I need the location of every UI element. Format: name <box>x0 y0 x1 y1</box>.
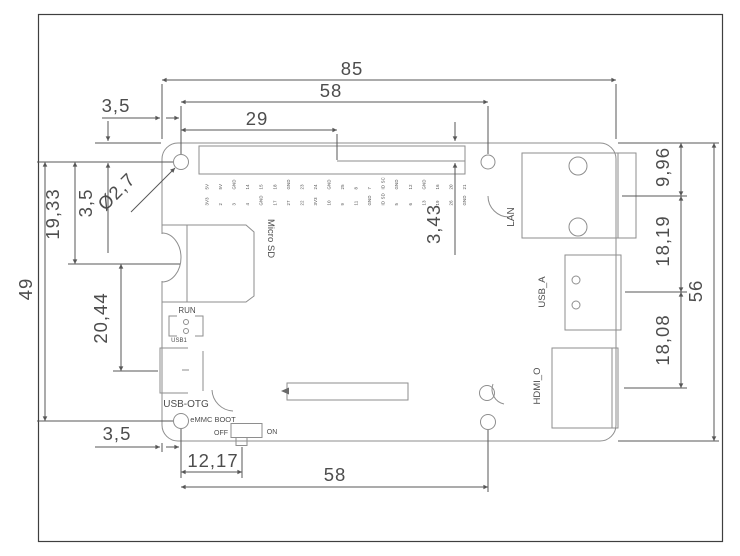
dim-hole-inset-y: 3,5 <box>75 189 96 218</box>
gpio-pin-label: GND <box>259 195 264 205</box>
lan-label: LAN <box>506 207 517 226</box>
dimension-lines <box>37 80 719 492</box>
usb-otg-label: USB-OTG <box>163 399 209 410</box>
gpio-pin-label: 11 <box>354 200 359 205</box>
dim-header-offset: 29 <box>246 108 269 129</box>
pcb-dimension-drawing: 5V3V35V2GND314415GND1817GND272322243V3GN… <box>0 0 740 556</box>
dim-hole-diameter: Ø2,7 <box>93 168 139 214</box>
dim-overall-width: 85 <box>341 58 364 79</box>
gpio-pin-label: GND <box>421 179 426 189</box>
usb-a-connector <box>565 255 621 330</box>
usb1-label: USB1 <box>171 338 187 344</box>
gpio-pin-label: GND <box>462 195 467 205</box>
gpio-pin-label: 25 <box>340 184 345 190</box>
hdmi-label: HDMI_O <box>532 368 543 405</box>
dim-bottom-holes-width: 58 <box>324 464 347 485</box>
run-label: RUN <box>178 306 196 315</box>
dim-hole-inset-bottom: 3,5 <box>103 423 132 444</box>
gpio-pin-label: 23 <box>299 184 304 190</box>
emmc-boot-switch <box>231 424 262 446</box>
on-label: ON <box>267 429 278 436</box>
gpio-pin-label: GND <box>286 179 291 189</box>
mounting-hole-bottom-right <box>481 415 496 430</box>
gpio-pin-label: GND <box>232 179 237 189</box>
gpio-pin-label: 21 <box>462 184 467 190</box>
micro-sd-label: Micro SD <box>265 219 276 258</box>
gpio-pin-label: 7 <box>367 187 372 190</box>
gpio-pin-label: 18 <box>272 184 277 190</box>
gpio-pin-label: 4 <box>245 203 250 206</box>
bottom-header <box>281 383 408 400</box>
usb-a-label: USB_A <box>537 276 548 308</box>
gpio-pin-label: 3V3 <box>313 197 318 206</box>
gpio-pin-label: 8 <box>354 187 359 190</box>
gpio-header <box>199 146 465 174</box>
notch-cover <box>159 234 165 281</box>
gpio-pin-label: GND <box>326 179 331 189</box>
gpio-pin-label: 5V <box>205 184 210 190</box>
gpio-pin-label: 3 <box>232 203 237 206</box>
dim-usb-spacing: 18,19 <box>652 215 673 266</box>
gpio-pin-labels: 5V3V35V2GND314415GND1817GND272322243V3GN… <box>205 177 467 205</box>
hdmi-connector <box>552 348 618 428</box>
dim-header-width: 58 <box>320 80 343 101</box>
off-label: OFF <box>214 430 228 437</box>
dim-lan-center: 9,96 <box>652 147 673 187</box>
gpio-pin-label: 2 <box>218 203 223 206</box>
sheet-border <box>39 15 723 542</box>
dim-left-upper: 19,33 <box>42 188 63 239</box>
mounting-hole-top-right <box>481 155 495 169</box>
dim-hole-inset-x: 3,5 <box>102 95 131 116</box>
gpio-pin-label: 5 <box>394 203 399 206</box>
dim-header-inset: 3,43 <box>423 204 444 244</box>
gpio-pin-label: GND <box>367 195 372 205</box>
dim-switch-offset: 12,17 <box>187 450 238 471</box>
gpio-pin-label: 26 <box>448 200 453 206</box>
gpio-pin-label: 5V <box>218 184 223 190</box>
gpio-pin-label: ID SD <box>381 193 386 205</box>
lan-connector <box>522 153 636 238</box>
run-button <box>169 316 203 336</box>
dim-left-lower: 20,44 <box>90 292 111 343</box>
gpio-pin-label: 9 <box>340 203 345 206</box>
arc-usb-otg <box>212 390 233 411</box>
board: 5V3V35V2GND314415GND1817GND272322243V3GN… <box>159 143 636 446</box>
gpio-pin-label: GND <box>394 179 399 189</box>
gpio-pin-label: 6 <box>408 203 413 206</box>
mounting-hole-top-left <box>174 155 189 170</box>
gpio-pin-label: 17 <box>272 200 277 206</box>
mounting-hole-bottom-left <box>174 414 189 429</box>
gpio-pin-label: 22 <box>299 200 304 206</box>
gpio-pin-label: 16 <box>435 184 440 190</box>
dim-holes-span: 49 <box>15 278 36 301</box>
gpio-pin-label: 15 <box>259 184 264 190</box>
dim-hdmi-spacing: 18,08 <box>652 314 673 365</box>
gpio-pin-label: ID SC <box>381 177 386 189</box>
gpio-pin-label: 10 <box>326 200 331 206</box>
emmc-boot-label: eMMC BOOT <box>190 415 236 424</box>
dim-board-height: 56 <box>685 280 706 303</box>
gpio-pin-label: 12 <box>408 184 413 190</box>
gpio-pin-label: 3V3 <box>205 197 210 206</box>
gpio-pin-label: 24 <box>313 184 318 190</box>
arc-bottom-right <box>492 384 504 404</box>
gpio-pin-label: 14 <box>245 184 250 190</box>
gpio-pin-label: 20 <box>448 184 453 190</box>
usb-otg-connector <box>160 348 203 393</box>
gpio-pin-label: 27 <box>286 200 291 206</box>
